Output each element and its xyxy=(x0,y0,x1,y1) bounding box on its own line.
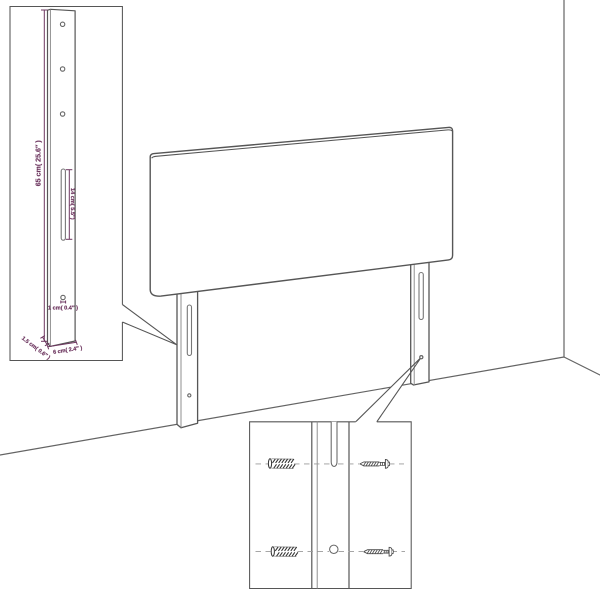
svg-text:65 cm( 25.6″ ): 65 cm( 25.6″ ) xyxy=(34,140,42,187)
svg-text:14 cm( 5.5″): 14 cm( 5.5″) xyxy=(69,188,76,220)
svg-text:1 cm( 0.4″ ): 1 cm( 0.4″ ) xyxy=(48,305,78,312)
